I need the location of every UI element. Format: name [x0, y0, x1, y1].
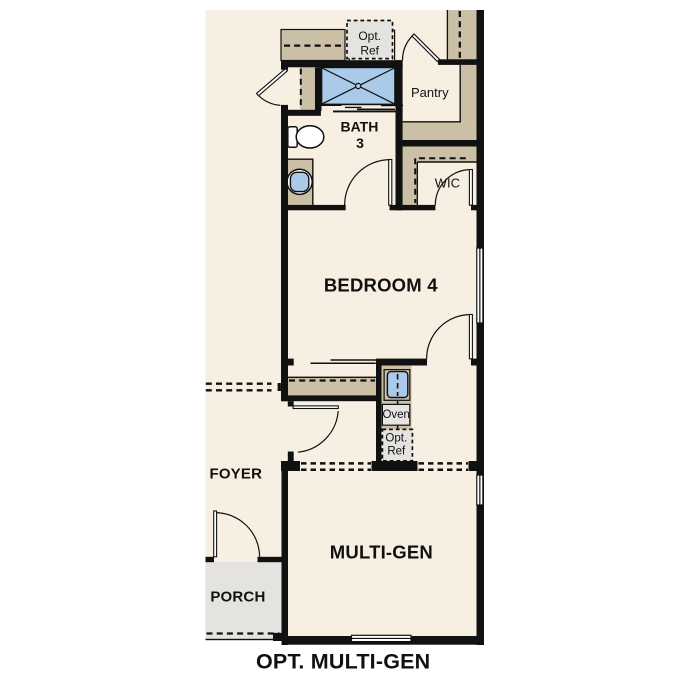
- svg-text:Ref: Ref: [387, 446, 406, 458]
- svg-text:Pantry: Pantry: [411, 85, 449, 100]
- svg-text:Opt.: Opt.: [358, 29, 381, 43]
- svg-text:3: 3: [356, 135, 364, 151]
- svg-text:PORCH: PORCH: [210, 589, 265, 606]
- svg-text:FOYER: FOYER: [209, 465, 262, 482]
- svg-text:Ref: Ref: [360, 43, 379, 57]
- svg-text:Oven: Oven: [382, 409, 410, 421]
- svg-text:BEDROOM 4: BEDROOM 4: [324, 274, 438, 295]
- svg-text:Opt.: Opt.: [385, 433, 407, 445]
- svg-text:MULTI-GEN: MULTI-GEN: [330, 542, 433, 563]
- svg-text:OPT. MULTI-GEN: OPT. MULTI-GEN: [256, 649, 430, 673]
- svg-text:WIC: WIC: [435, 176, 460, 191]
- svg-text:BATH: BATH: [340, 118, 378, 134]
